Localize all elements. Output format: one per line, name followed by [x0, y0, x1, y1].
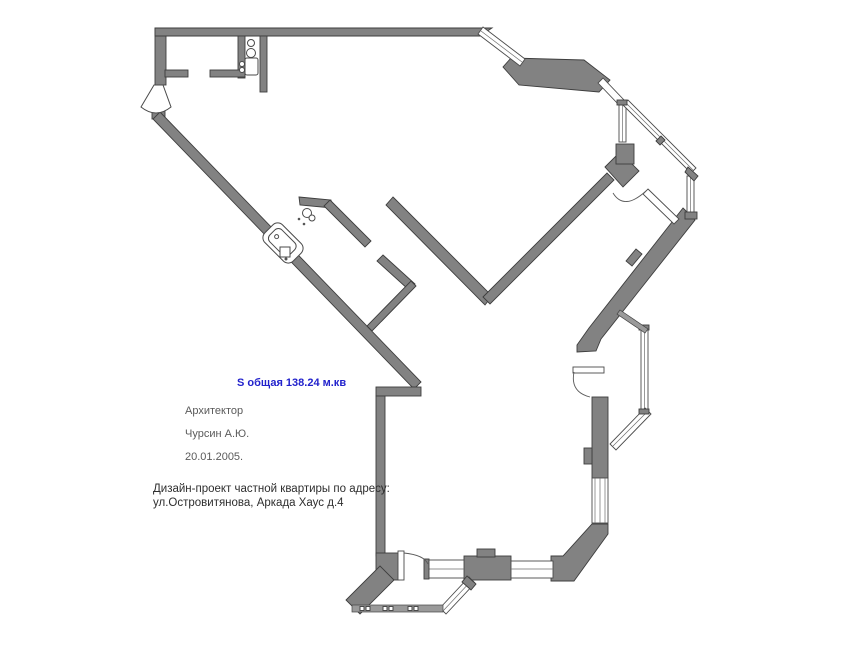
architect-name: Чурсин А.Ю. [185, 428, 249, 440]
total-area-label: S общая 138.24 м.кв [237, 377, 346, 389]
project-address-line2: ул.Островитянова, Аркада Хаус д.4 [153, 497, 344, 509]
toilet-icon [248, 40, 255, 47]
window-caps [424, 100, 698, 590]
hinge-icon [240, 62, 245, 67]
project-date: 20.01.2005. [185, 451, 243, 463]
architect-title: Архитектор [185, 405, 243, 417]
sink-icon [298, 209, 315, 226]
project-address-line1: Дизайн-проект частной квартиры по адресу… [153, 483, 390, 495]
floor-plan-page: S общая 138.24 м.кв Архитектор Чурсин А.… [0, 0, 864, 646]
floor-plan-drawing [0, 0, 864, 646]
entrance-door-icon [141, 85, 171, 113]
bathroom-fixtures [260, 209, 315, 266]
windows [428, 27, 696, 614]
